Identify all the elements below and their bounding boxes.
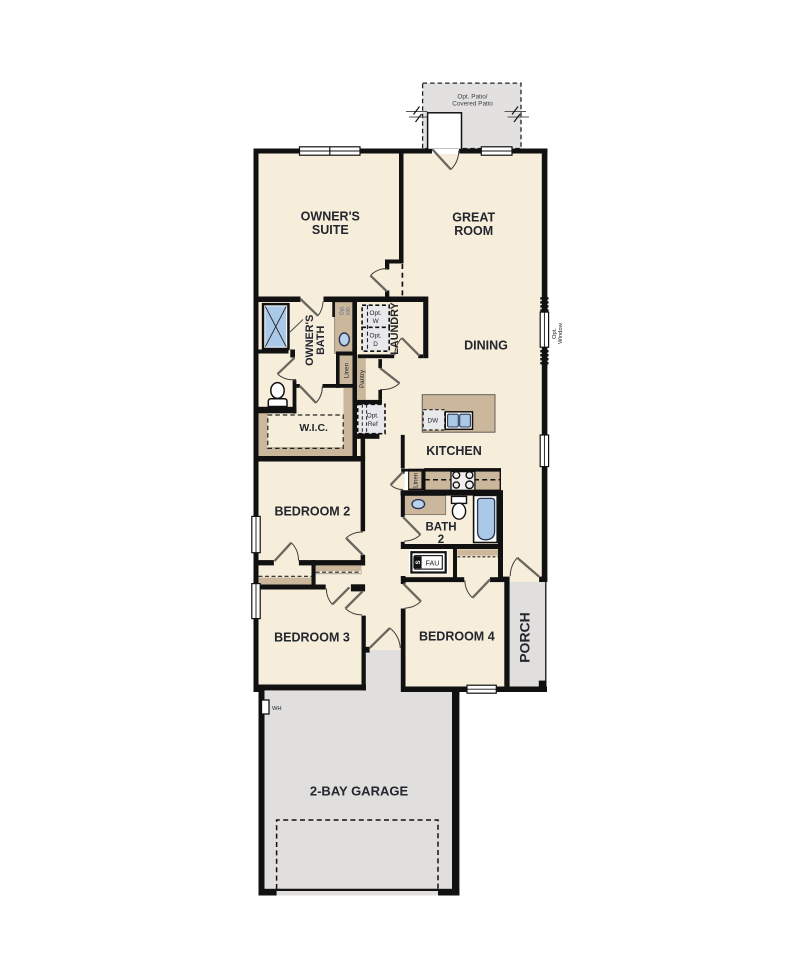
svg-text:FAU: FAU [426, 558, 440, 567]
svg-text:BEDROOM 3: BEDROOM 3 [274, 631, 350, 645]
svg-text:KITCHEN: KITCHEN [426, 444, 482, 458]
svg-text:BATH: BATH [315, 326, 327, 355]
svg-text:2: 2 [438, 534, 444, 546]
svg-text:Opt.: Opt. [370, 310, 382, 317]
svg-text:Opt.: Opt. [367, 412, 379, 419]
svg-text:BEDROOM 2: BEDROOM 2 [274, 505, 350, 519]
svg-text:OWNER'S: OWNER'S [301, 210, 360, 224]
svg-text:SUITE: SUITE [312, 223, 349, 237]
svg-text:Opt.: Opt. [552, 328, 558, 339]
svg-text:S: S [416, 560, 422, 564]
svg-text:cab.: cab. [346, 306, 352, 315]
svg-text:Opt.: Opt. [370, 333, 382, 340]
svg-text:GREAT: GREAT [452, 210, 495, 224]
svg-text:W.I.C.: W.I.C. [299, 422, 328, 434]
svg-text:BATH: BATH [425, 522, 456, 534]
svg-text:Linen: Linen [344, 362, 351, 378]
svg-text:ROOM: ROOM [454, 224, 493, 238]
svg-text:Ref: Ref [368, 421, 378, 428]
svg-text:D: D [373, 341, 378, 348]
svg-text:DINING: DINING [464, 338, 508, 352]
svg-text:W: W [373, 318, 380, 325]
svg-text:Linen: Linen [413, 472, 420, 488]
svg-text:2-BAY GARAGE: 2-BAY GARAGE [310, 784, 409, 799]
svg-text:LAUNDRY: LAUNDRY [389, 302, 401, 355]
svg-text:Covered Patio: Covered Patio [452, 100, 493, 107]
svg-text:WH: WH [272, 706, 282, 712]
svg-text:Pantry: Pantry [359, 369, 366, 388]
svg-text:DW: DW [427, 418, 439, 425]
svg-text:Window: Window [558, 322, 564, 343]
svg-text:BEDROOM 4: BEDROOM 4 [419, 630, 495, 644]
svg-text:PORCH: PORCH [517, 612, 533, 663]
